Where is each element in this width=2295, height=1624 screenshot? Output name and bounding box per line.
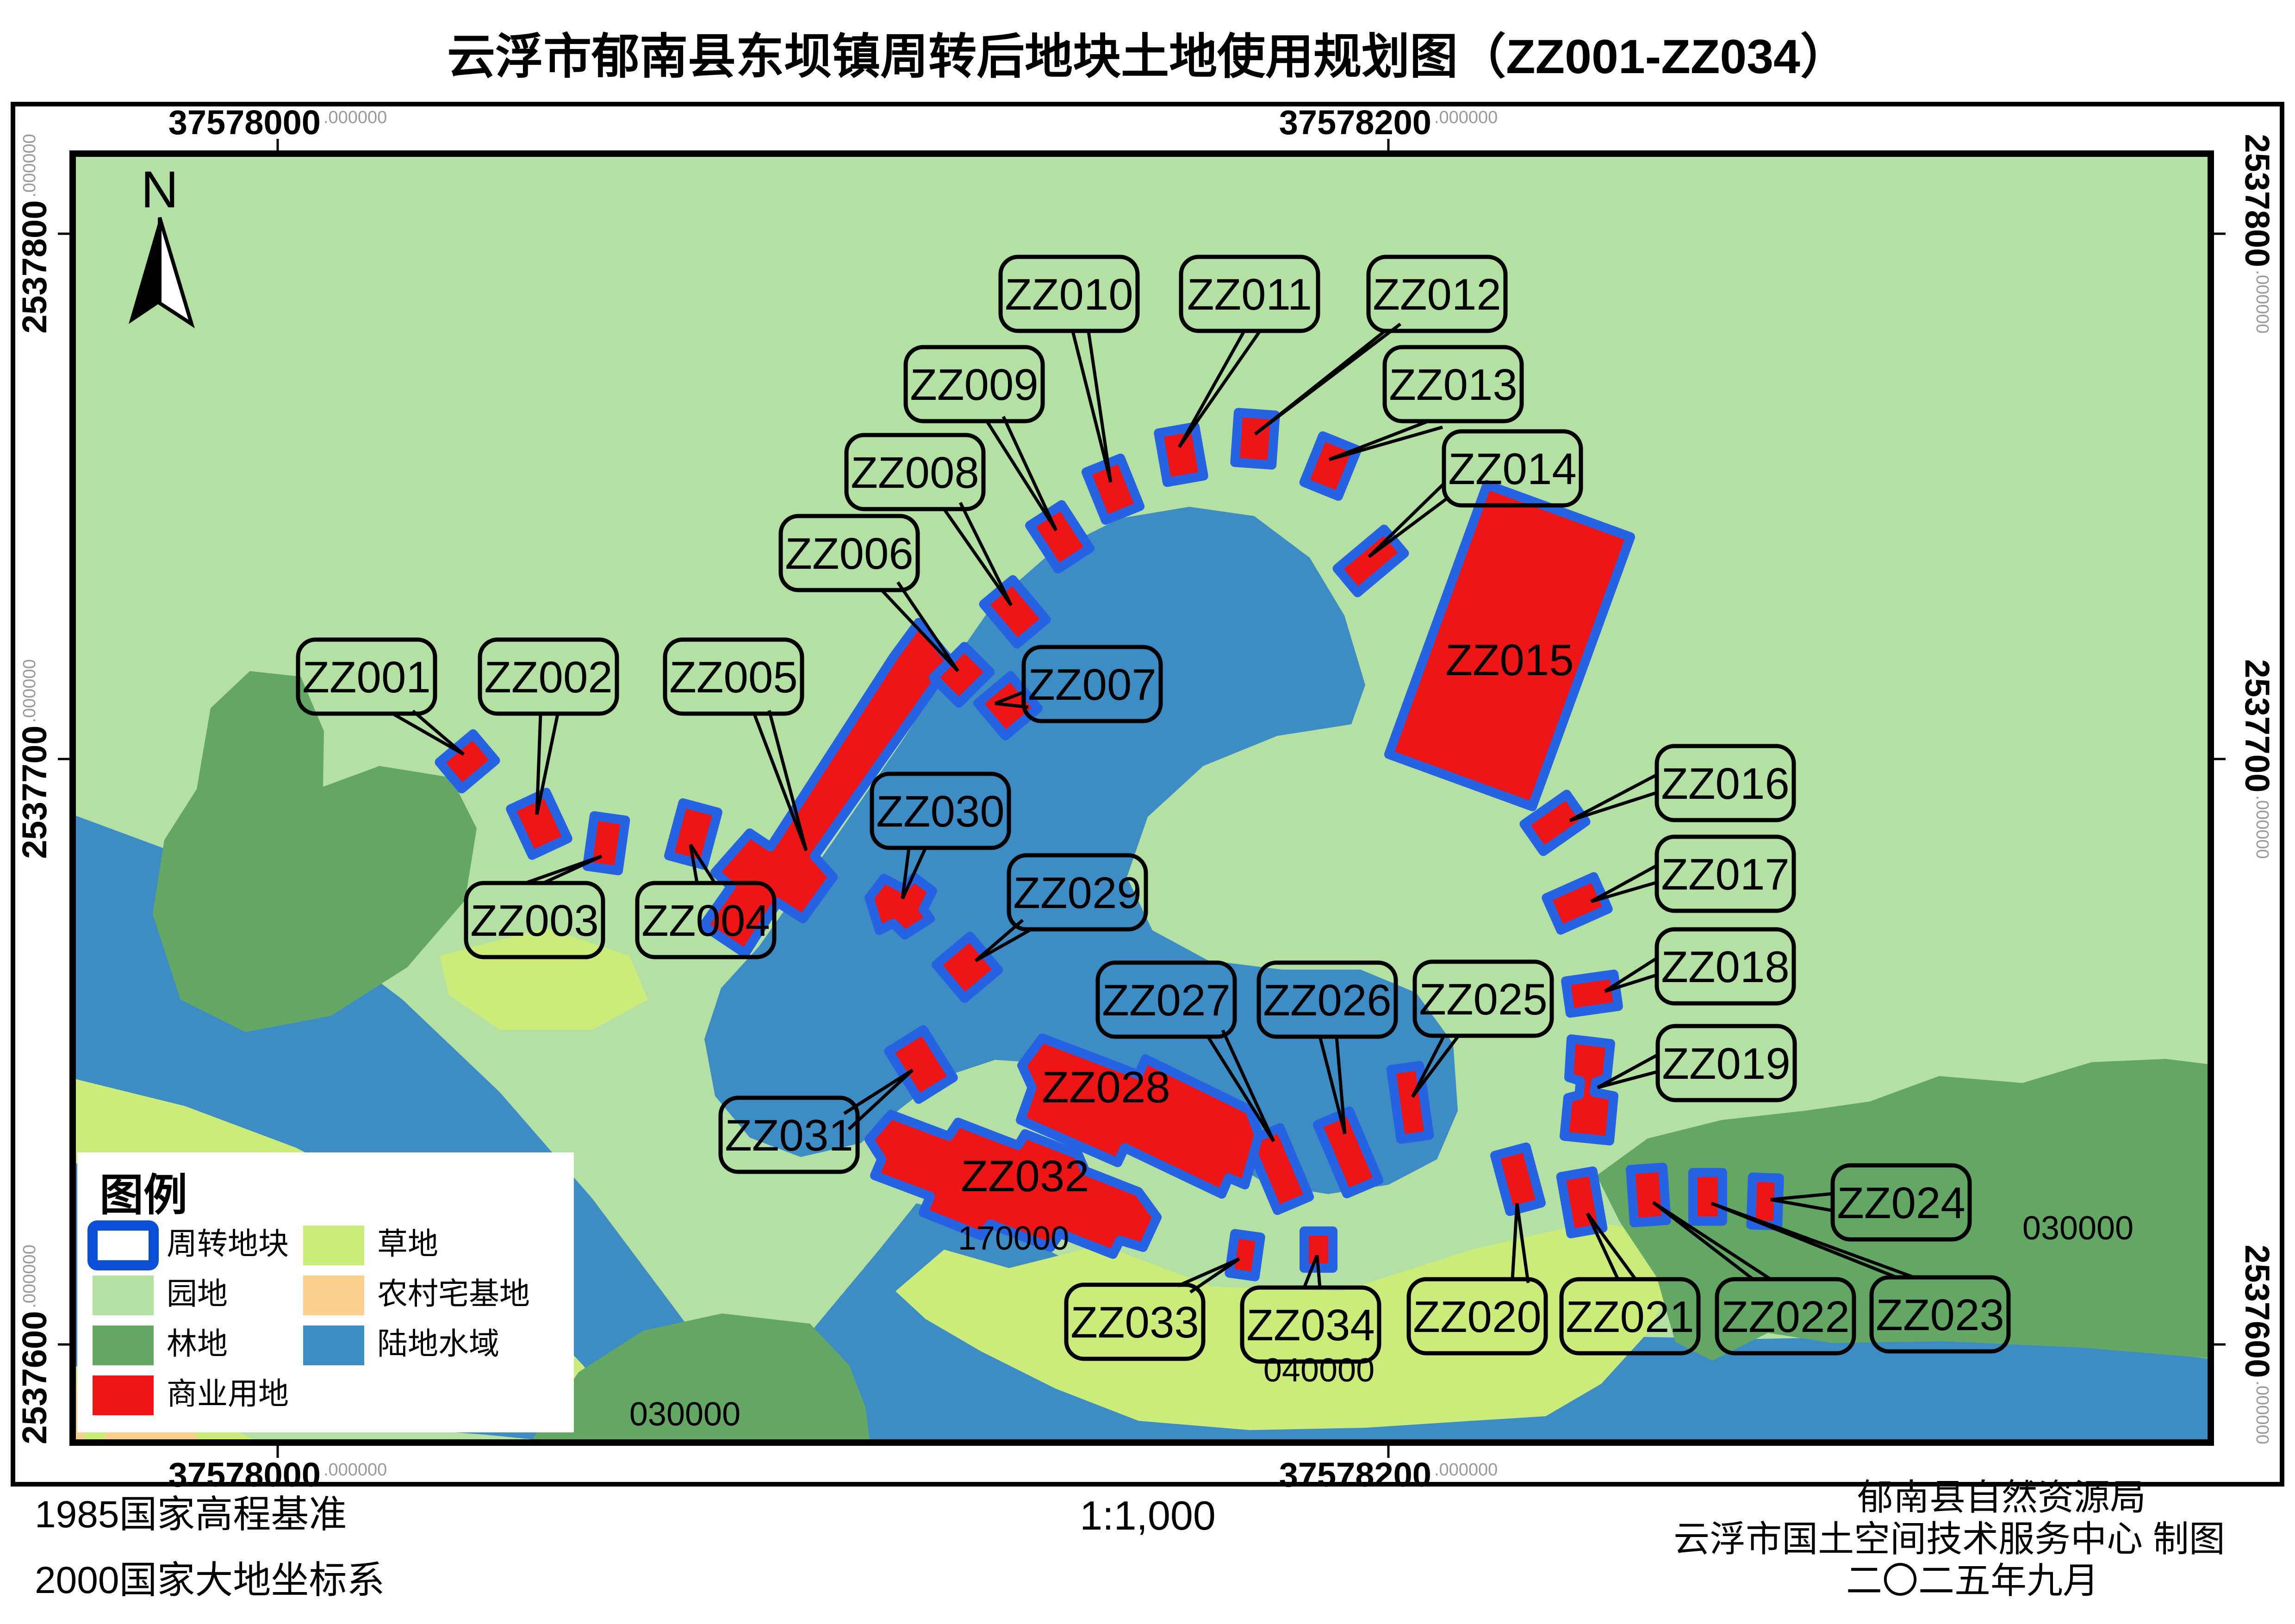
- legend-swatch: [93, 1276, 154, 1315]
- parcel-ZZ018: [1566, 974, 1618, 1013]
- callout-label-ZZ009: ZZ009: [910, 360, 1038, 410]
- legend-item-周转地块: 周转地块: [93, 1226, 289, 1265]
- callout-label-ZZ017: ZZ017: [1661, 850, 1789, 899]
- vertical-datum-note: 1985国家高程基准: [35, 1493, 347, 1536]
- callout-label-ZZ003: ZZ003: [470, 896, 598, 946]
- coord-top-37578200: 37578200.000000: [1279, 103, 1498, 142]
- scale-text: 1:1,000: [1080, 1493, 1216, 1538]
- credit-agency: 郁南县自然资源局: [1857, 1477, 2146, 1518]
- callout-label-ZZ004: ZZ004: [641, 896, 770, 946]
- legend-swatch: [303, 1325, 364, 1365]
- callout-label-ZZ029: ZZ029: [1013, 868, 1141, 918]
- map-number-030000: 030000: [2022, 1210, 2133, 1247]
- legend-item-陆地水域: 陆地水域: [303, 1325, 499, 1365]
- map-number-040000: 040000: [1263, 1352, 1375, 1389]
- callout-label-ZZ026: ZZ026: [1263, 976, 1391, 1025]
- planning-map-svg: 云浮市郁南县东坝镇周转后地块土地使用规划图（ZZ001-ZZ034） ZZ001…: [0, 0, 2295, 1624]
- legend-item-农村宅基地: 农村宅基地: [303, 1276, 530, 1315]
- callout-label-ZZ031: ZZ031: [725, 1111, 853, 1160]
- legend-label: 林地: [167, 1327, 228, 1361]
- callout-ZZ028: ZZ028: [1042, 1063, 1170, 1112]
- geodetic-datum-note: 2000国家大地坐标系: [35, 1559, 385, 1601]
- legend-label: 园地: [167, 1277, 228, 1311]
- callout-ZZ032: ZZ032: [961, 1151, 1089, 1201]
- legend-label: 陆地水域: [377, 1327, 499, 1361]
- callout-label-ZZ020: ZZ020: [1413, 1292, 1541, 1342]
- callout-label-ZZ024: ZZ024: [1837, 1178, 1965, 1228]
- callout-label-ZZ013: ZZ013: [1389, 360, 1517, 410]
- map-number-030000: 030000: [629, 1396, 740, 1433]
- callout-label-ZZ012: ZZ012: [1373, 270, 1501, 319]
- legend-swatch: [93, 1325, 154, 1365]
- parcel-ZZ030: [869, 877, 933, 935]
- callout-label-ZZ028: ZZ028: [1042, 1063, 1170, 1112]
- legend-swatch: [93, 1375, 154, 1415]
- coord-right-2537800: 2537800.000000: [2238, 134, 2276, 333]
- callout-label-ZZ007: ZZ007: [1028, 660, 1156, 709]
- credit-date: 二〇二五年九月: [1846, 1560, 2099, 1601]
- legend-label: 农村宅基地: [377, 1277, 530, 1311]
- callout-label-ZZ008: ZZ008: [851, 448, 979, 498]
- coord-left-2537600: 2537600.000000: [15, 1244, 54, 1444]
- callout-label-ZZ027: ZZ027: [1102, 976, 1230, 1025]
- map-sheet: 云浮市郁南县东坝镇周转后地块土地使用规划图（ZZ001-ZZ034） ZZ001…: [0, 0, 2295, 1624]
- callout-label-ZZ015: ZZ015: [1445, 635, 1574, 685]
- north-label: N: [141, 161, 179, 218]
- callout-label-ZZ034: ZZ034: [1246, 1300, 1375, 1350]
- callout-label-ZZ030: ZZ030: [876, 787, 1004, 836]
- coord-right-2537600: 2537600.000000: [2238, 1244, 2276, 1444]
- page-title: 云浮市郁南县东坝镇周转后地块土地使用规划图（ZZ001-ZZ034）: [447, 30, 1848, 84]
- callout-label-ZZ006: ZZ006: [785, 529, 913, 579]
- callout-label-ZZ025: ZZ025: [1419, 975, 1547, 1024]
- legend-label: 草地: [377, 1227, 438, 1261]
- legend-label: 周转地块: [167, 1227, 289, 1261]
- legend: 图例 周转地块园地林地商业用地草地农村宅基地陆地水域: [77, 1152, 574, 1432]
- parcel-ZZ022: [1630, 1167, 1667, 1223]
- coord-right-2537700: 2537700.000000: [2238, 659, 2276, 859]
- legend-swatch: [303, 1226, 364, 1265]
- callout-label-ZZ018: ZZ018: [1661, 942, 1789, 992]
- legend-item-商业用地: 商业用地: [93, 1375, 289, 1415]
- parcel-ZZ011: [1158, 427, 1204, 482]
- parcel-ZZ033: [1229, 1234, 1260, 1277]
- callout-label-ZZ022: ZZ022: [1721, 1292, 1849, 1342]
- credit-producer: 云浮市国土空间技术服务中心 制图: [1673, 1518, 2225, 1559]
- coord-top-37578000: 37578000.000000: [168, 103, 387, 142]
- callout-ZZ015: ZZ015: [1445, 635, 1574, 685]
- legend-swatch: [303, 1276, 364, 1315]
- map-number-170000: 170000: [958, 1220, 1069, 1257]
- callout-label-ZZ014: ZZ014: [1448, 444, 1576, 494]
- coord-left-2537800: 2537800.000000: [15, 134, 54, 333]
- parcel-ZZ023: [1693, 1173, 1723, 1221]
- coord-left-2537700: 2537700.000000: [15, 659, 54, 859]
- callout-label-ZZ021: ZZ021: [1566, 1292, 1694, 1342]
- callout-label-ZZ023: ZZ023: [1876, 1290, 2004, 1340]
- callout-label-ZZ032: ZZ032: [961, 1151, 1089, 1201]
- callout-label-ZZ005: ZZ005: [669, 653, 797, 702]
- legend-label: 商业用地: [167, 1377, 289, 1411]
- callout-label-ZZ001: ZZ001: [302, 653, 430, 702]
- callout-label-ZZ010: ZZ010: [1005, 270, 1133, 319]
- callout-label-ZZ019: ZZ019: [1662, 1039, 1790, 1089]
- callout-label-ZZ033: ZZ033: [1070, 1298, 1199, 1347]
- coord-bottom-37578200: 37578200.000000: [1279, 1456, 1498, 1494]
- callout-label-ZZ016: ZZ016: [1661, 759, 1789, 809]
- callout-label-ZZ011: ZZ011: [1187, 270, 1312, 319]
- legend-title: 图例: [100, 1171, 187, 1220]
- parcel-ZZ012: [1235, 412, 1275, 465]
- parcel-ZZ003: [587, 816, 626, 871]
- coord-bottom-37578000: 37578000.000000: [168, 1456, 387, 1494]
- legend-swatch-outline: [93, 1226, 154, 1265]
- callout-label-ZZ002: ZZ002: [484, 653, 612, 702]
